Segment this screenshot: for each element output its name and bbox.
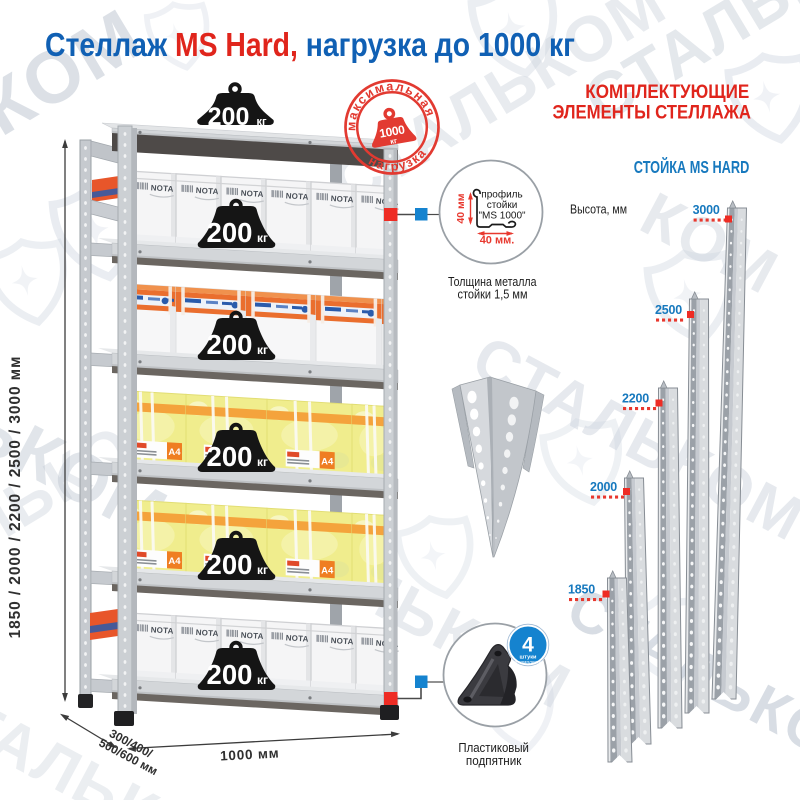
svg-text:200: 200 [207, 549, 253, 580]
svg-text:NOTA: NOTA [285, 191, 308, 201]
svg-text:40 мм.: 40 мм. [480, 235, 515, 247]
svg-text:2000: 2000 [590, 480, 617, 494]
svg-text:кг: кг [257, 455, 268, 469]
svg-text:A4: A4 [168, 447, 181, 458]
svg-text:NOTA: NOTA [240, 631, 263, 641]
svg-text:СТОЙКА MS HARD: СТОЙКА MS HARD [634, 156, 750, 177]
svg-text:4: 4 [522, 634, 534, 657]
svg-text:200: 200 [207, 659, 253, 690]
svg-text:40 мм: 40 мм [455, 193, 467, 223]
svg-text:NOTA: NOTA [330, 636, 353, 646]
svg-text:стойки: стойки [487, 200, 518, 211]
svg-text:профиль: профиль [481, 189, 522, 201]
svg-text:NOTA: NOTA [150, 183, 173, 193]
svg-text:1850: 1850 [568, 583, 595, 597]
svg-text:200: 200 [207, 217, 253, 248]
svg-text:200: 200 [208, 103, 250, 131]
svg-text:NOTA: NOTA [150, 625, 173, 635]
svg-text:кг: кг [257, 343, 268, 357]
svg-text:ЭЛЕМЕНТЫ СТЕЛЛАЖА: ЭЛЕМЕНТЫ СТЕЛЛАЖА [553, 102, 752, 124]
svg-text:1850 / 2000 / 2200 / 2500 / 30: 1850 / 2000 / 2200 / 2500 / 3000 мм [7, 356, 24, 639]
svg-text:200: 200 [207, 441, 253, 472]
svg-text:2200: 2200 [622, 392, 649, 406]
svg-text:NOTA: NOTA [240, 189, 263, 199]
svg-text:A4: A4 [168, 556, 181, 567]
svg-text:NOTA: NOTA [285, 633, 308, 643]
svg-text:A4: A4 [321, 456, 334, 467]
svg-text:Стеллаж MS Hard, нагрузка до 1: Стеллаж MS Hard, нагрузка до 1000 кг [45, 26, 575, 63]
svg-text:"MS 1000": "MS 1000" [478, 211, 526, 222]
svg-text:подпятник: подпятник [466, 753, 522, 768]
svg-text:кг: кг [257, 673, 268, 687]
svg-text:в комплекте: в комплекте [514, 661, 541, 666]
svg-text:1000 мм: 1000 мм [220, 745, 280, 763]
svg-text:A4: A4 [321, 565, 334, 576]
svg-text:кг: кг [256, 116, 267, 128]
svg-text:2500: 2500 [655, 303, 682, 317]
svg-text:стойки 1,5 мм: стойки 1,5 мм [458, 287, 528, 302]
svg-text:3000: 3000 [693, 203, 720, 217]
svg-text:NOTA: NOTA [195, 186, 218, 196]
svg-text:кг: кг [257, 563, 268, 577]
svg-text:NOTA: NOTA [195, 628, 218, 638]
svg-text:КОМПЛЕКТУЮЩИЕ: КОМПЛЕКТУЮЩИЕ [585, 81, 749, 103]
svg-text:кг: кг [257, 231, 268, 245]
svg-text:200: 200 [207, 329, 253, 360]
svg-text:Высота, мм: Высота, мм [570, 202, 627, 217]
svg-text:NOTA: NOTA [330, 194, 353, 204]
